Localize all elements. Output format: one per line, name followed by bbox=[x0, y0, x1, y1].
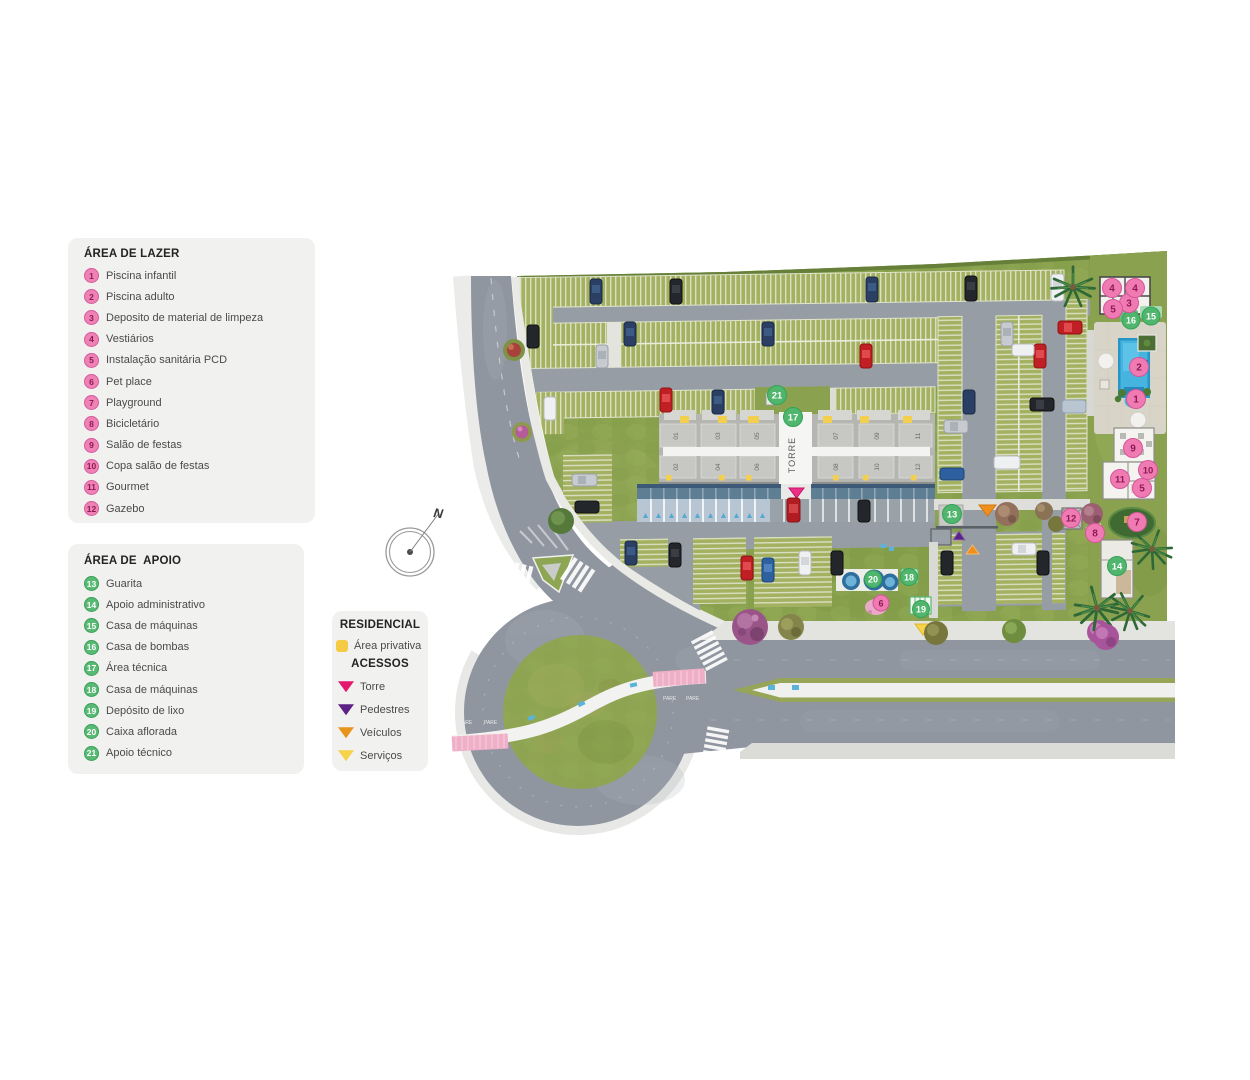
svg-text:04: 04 bbox=[715, 463, 722, 471]
svg-text:4: 4 bbox=[1132, 284, 1138, 295]
svg-text:14: 14 bbox=[1112, 562, 1123, 573]
svg-text:7: 7 bbox=[1134, 518, 1140, 529]
svg-text:10: 10 bbox=[874, 463, 881, 471]
svg-text:PARE: PARE bbox=[459, 720, 473, 726]
svg-text:17: 17 bbox=[788, 413, 799, 424]
svg-text:20: 20 bbox=[868, 575, 878, 585]
svg-text:3: 3 bbox=[1126, 299, 1132, 310]
svg-text:PARE: PARE bbox=[484, 720, 498, 726]
svg-text:05: 05 bbox=[754, 432, 761, 440]
svg-text:01: 01 bbox=[673, 432, 680, 440]
svg-text:09: 09 bbox=[874, 432, 881, 440]
svg-text:21: 21 bbox=[772, 391, 783, 402]
svg-text:11: 11 bbox=[1115, 475, 1126, 486]
svg-text:19: 19 bbox=[916, 605, 926, 615]
svg-text:1: 1 bbox=[1133, 395, 1139, 406]
svg-text:TORRE: TORRE bbox=[787, 437, 797, 473]
svg-text:08: 08 bbox=[833, 463, 840, 471]
svg-text:12: 12 bbox=[1066, 514, 1077, 525]
svg-text:16: 16 bbox=[1126, 316, 1136, 326]
svg-text:07: 07 bbox=[833, 432, 840, 440]
svg-text:PARE: PARE bbox=[663, 696, 677, 702]
svg-text:02: 02 bbox=[673, 463, 680, 471]
svg-text:PARE: PARE bbox=[686, 696, 700, 702]
svg-text:5: 5 bbox=[1110, 305, 1116, 316]
svg-text:11: 11 bbox=[915, 432, 922, 439]
svg-text:5: 5 bbox=[1139, 484, 1145, 495]
svg-text:8: 8 bbox=[1092, 529, 1098, 540]
svg-text:12: 12 bbox=[915, 463, 922, 471]
svg-text:9: 9 bbox=[1130, 444, 1136, 455]
svg-text:15: 15 bbox=[1146, 312, 1156, 322]
svg-text:4: 4 bbox=[1109, 284, 1115, 295]
svg-text:6: 6 bbox=[878, 599, 883, 609]
svg-text:03: 03 bbox=[715, 432, 722, 440]
svg-text:10: 10 bbox=[1143, 466, 1154, 477]
svg-text:13: 13 bbox=[947, 510, 958, 521]
svg-text:18: 18 bbox=[904, 573, 914, 583]
svg-text:06: 06 bbox=[754, 463, 761, 471]
svg-text:2: 2 bbox=[1136, 363, 1142, 374]
